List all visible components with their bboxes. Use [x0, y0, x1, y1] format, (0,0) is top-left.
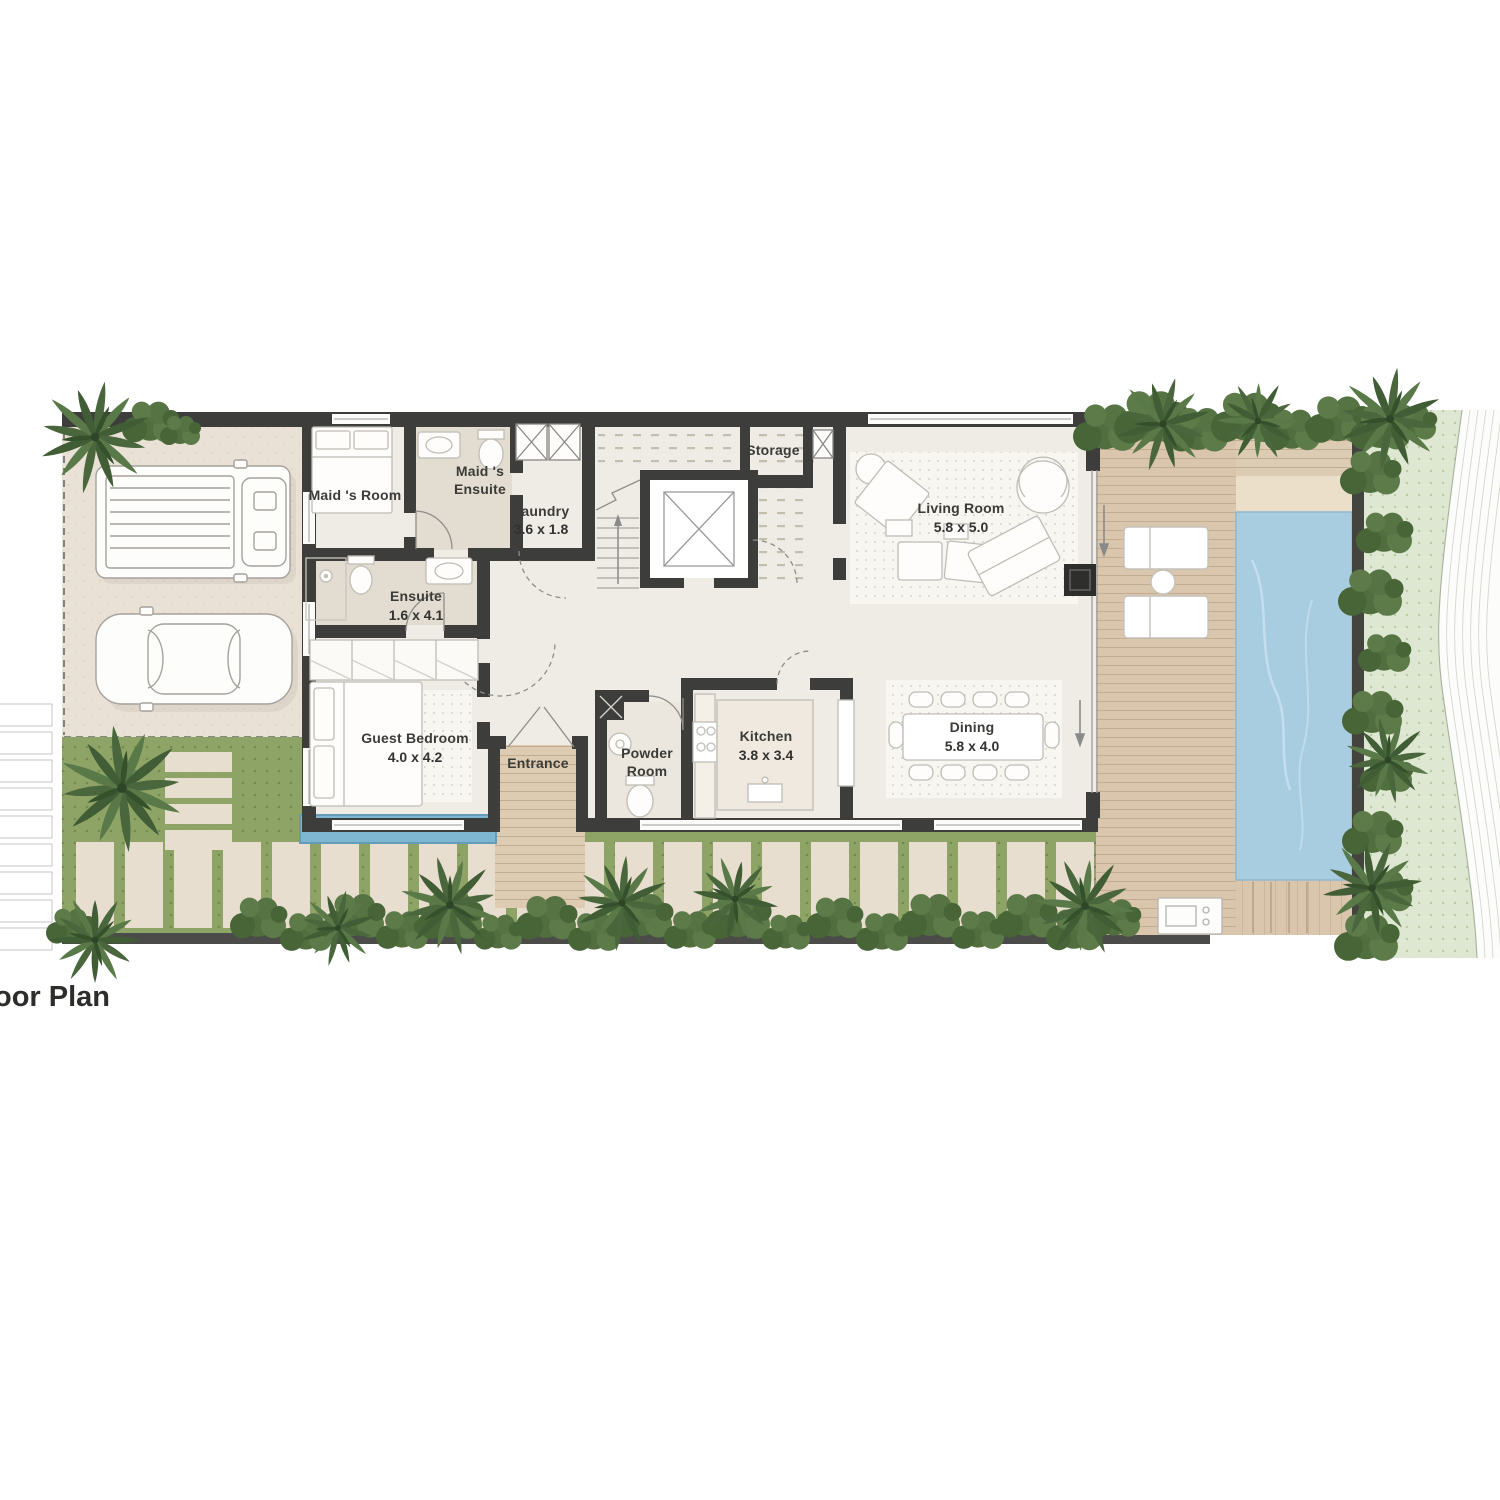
floor-plan-canvas: Maid 's Room Maid 's Ensuite Laundry 3.6… — [0, 0, 1500, 1500]
label-ensuite: Ensuite — [390, 588, 442, 604]
label-laundry: Laundry — [513, 503, 570, 519]
dims-living-room: 5.8 x 5.0 — [934, 519, 989, 535]
dims-dining: 5.8 x 4.0 — [945, 738, 1000, 754]
fireplace — [1064, 564, 1096, 596]
label-kitchen: Kitchen — [740, 728, 793, 744]
bar-counter — [838, 700, 854, 786]
label-maids-ensuite-1: Maid 's — [456, 463, 504, 479]
label-entrance: Entrance — [507, 755, 569, 771]
dims-guest-bedroom: 4.0 x 4.2 — [388, 749, 443, 765]
pool — [1236, 512, 1352, 880]
dims-kitchen: 3.8 x 3.4 — [739, 747, 794, 763]
label-living-room: Living Room — [918, 500, 1005, 516]
label-storage: Storage — [746, 442, 800, 458]
dims-laundry: 3.6 x 1.8 — [514, 521, 569, 537]
elevator — [650, 480, 748, 578]
label-dining: Dining — [950, 719, 995, 735]
label-maids-ensuite-2: Ensuite — [454, 481, 506, 497]
dims-ensuite: 1.6 x 4.1 — [389, 607, 444, 623]
sedan-car — [96, 607, 298, 712]
bbq-grill — [1158, 898, 1222, 934]
suv-car — [96, 460, 296, 584]
label-maids-room: Maid 's Room — [309, 487, 402, 503]
label-powder-room-1: Powder — [621, 745, 673, 761]
sidewalk — [0, 704, 52, 950]
plan-title: oor Plan — [0, 981, 110, 1013]
guest-bedroom-furniture — [310, 640, 478, 806]
label-guest-bedroom: Guest Bedroom — [361, 730, 469, 746]
label-powder-room-2: Room — [627, 763, 667, 779]
side-table — [1151, 570, 1175, 594]
